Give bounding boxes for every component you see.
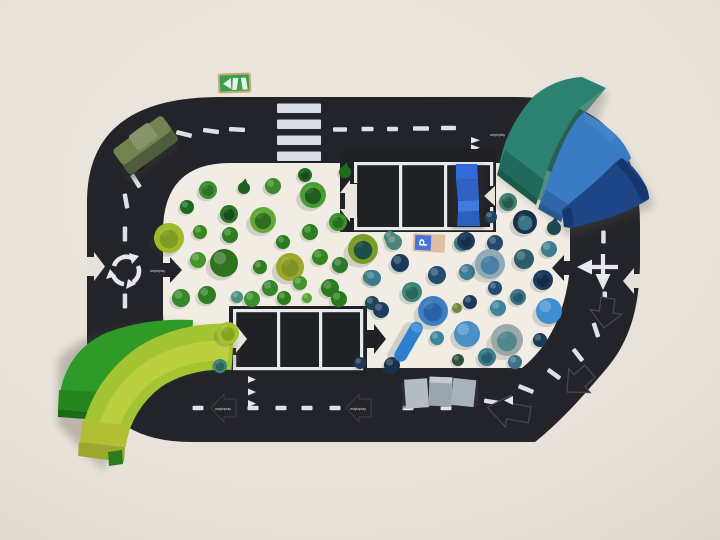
svg-text:waytoplay: waytoplay [490, 133, 505, 137]
svg-text:waytoplay: waytoplay [215, 407, 231, 411]
svg-text:waytoplay: waytoplay [150, 269, 165, 273]
svg-text:waytoplay: waytoplay [350, 407, 366, 411]
svg-text:P: P [418, 239, 430, 247]
